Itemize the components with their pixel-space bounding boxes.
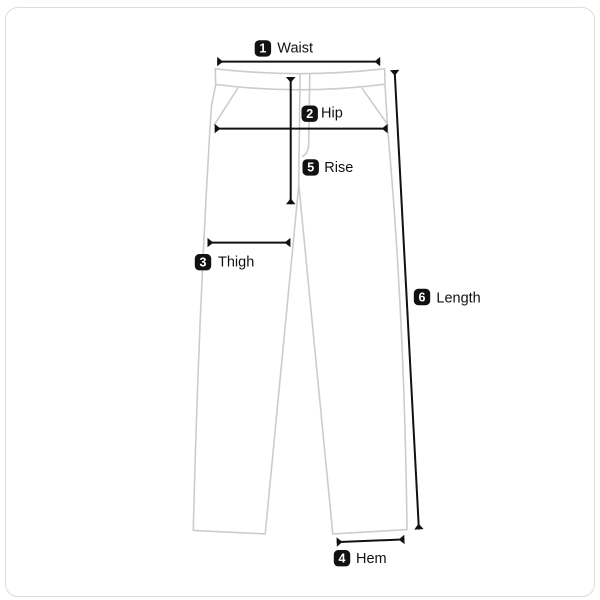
svg-text:6: 6: [419, 290, 426, 304]
svg-text:Thigh: Thigh: [218, 255, 254, 271]
svg-text:4: 4: [339, 552, 346, 566]
svg-text:3: 3: [200, 256, 207, 270]
svg-text:Length: Length: [436, 290, 480, 306]
svg-text:1: 1: [259, 42, 266, 56]
svg-text:Waist: Waist: [277, 40, 313, 56]
svg-text:Rise: Rise: [324, 160, 353, 176]
svg-text:Hem: Hem: [356, 551, 387, 567]
svg-text:5: 5: [307, 161, 314, 175]
svg-text:Hip: Hip: [321, 106, 343, 122]
svg-text:2: 2: [306, 107, 313, 121]
